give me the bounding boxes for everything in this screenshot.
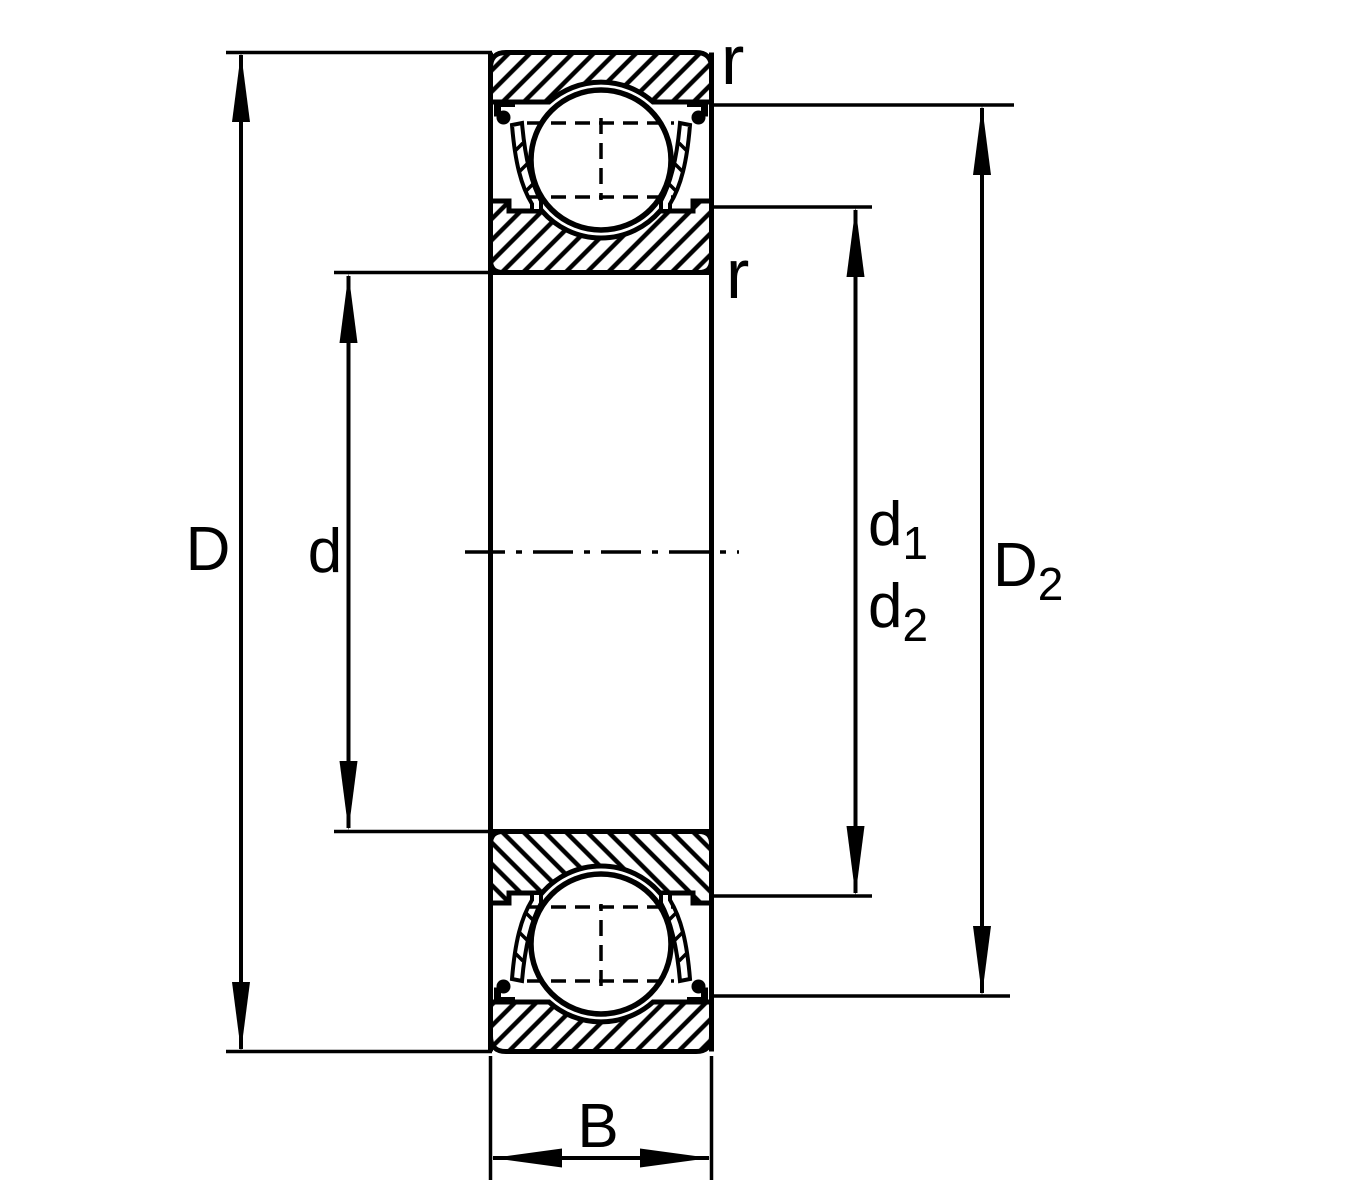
arrowhead-d1d2-down	[847, 826, 865, 896]
dimension-d: d	[308, 273, 492, 832]
arrowhead-D2-down	[973, 926, 991, 996]
bearing-cross-section	[465, 53, 739, 1052]
label-d: d	[308, 517, 342, 586]
label-d1-subscript: 1	[902, 517, 928, 569]
label-d1-base: d	[868, 490, 902, 559]
arrowhead-d-up	[340, 274, 358, 344]
arrowhead-d-down	[340, 761, 358, 831]
label-D2-base: D	[993, 531, 1038, 600]
label-r-inner-corner: r	[726, 235, 749, 313]
label-D2: D2	[993, 531, 1063, 610]
label-r-outer-corner: r	[721, 21, 744, 99]
arrowhead-D2-up	[973, 106, 991, 176]
arrowhead-D-up	[232, 53, 250, 123]
dimension-B: B	[491, 1056, 712, 1180]
bottom-half-section	[491, 832, 712, 1052]
arrowhead-B-left	[492, 1149, 562, 1168]
label-D2-subscript: 2	[1038, 558, 1064, 610]
label-d2: d2	[868, 572, 928, 651]
label-d1: d1	[868, 490, 928, 569]
arrowhead-d1d2-up	[847, 208, 865, 278]
arrowhead-B-right	[640, 1149, 710, 1168]
arrowhead-D-down	[232, 982, 250, 1052]
label-d2-subscript: 2	[902, 599, 928, 651]
label-d2-base: d	[868, 572, 902, 641]
label-D: D	[186, 515, 231, 584]
label-B: B	[577, 1092, 618, 1161]
bearing-dimension-diagram: D d d1 d2 D2 B r r	[0, 0, 1350, 1200]
top-half-section	[491, 53, 712, 273]
